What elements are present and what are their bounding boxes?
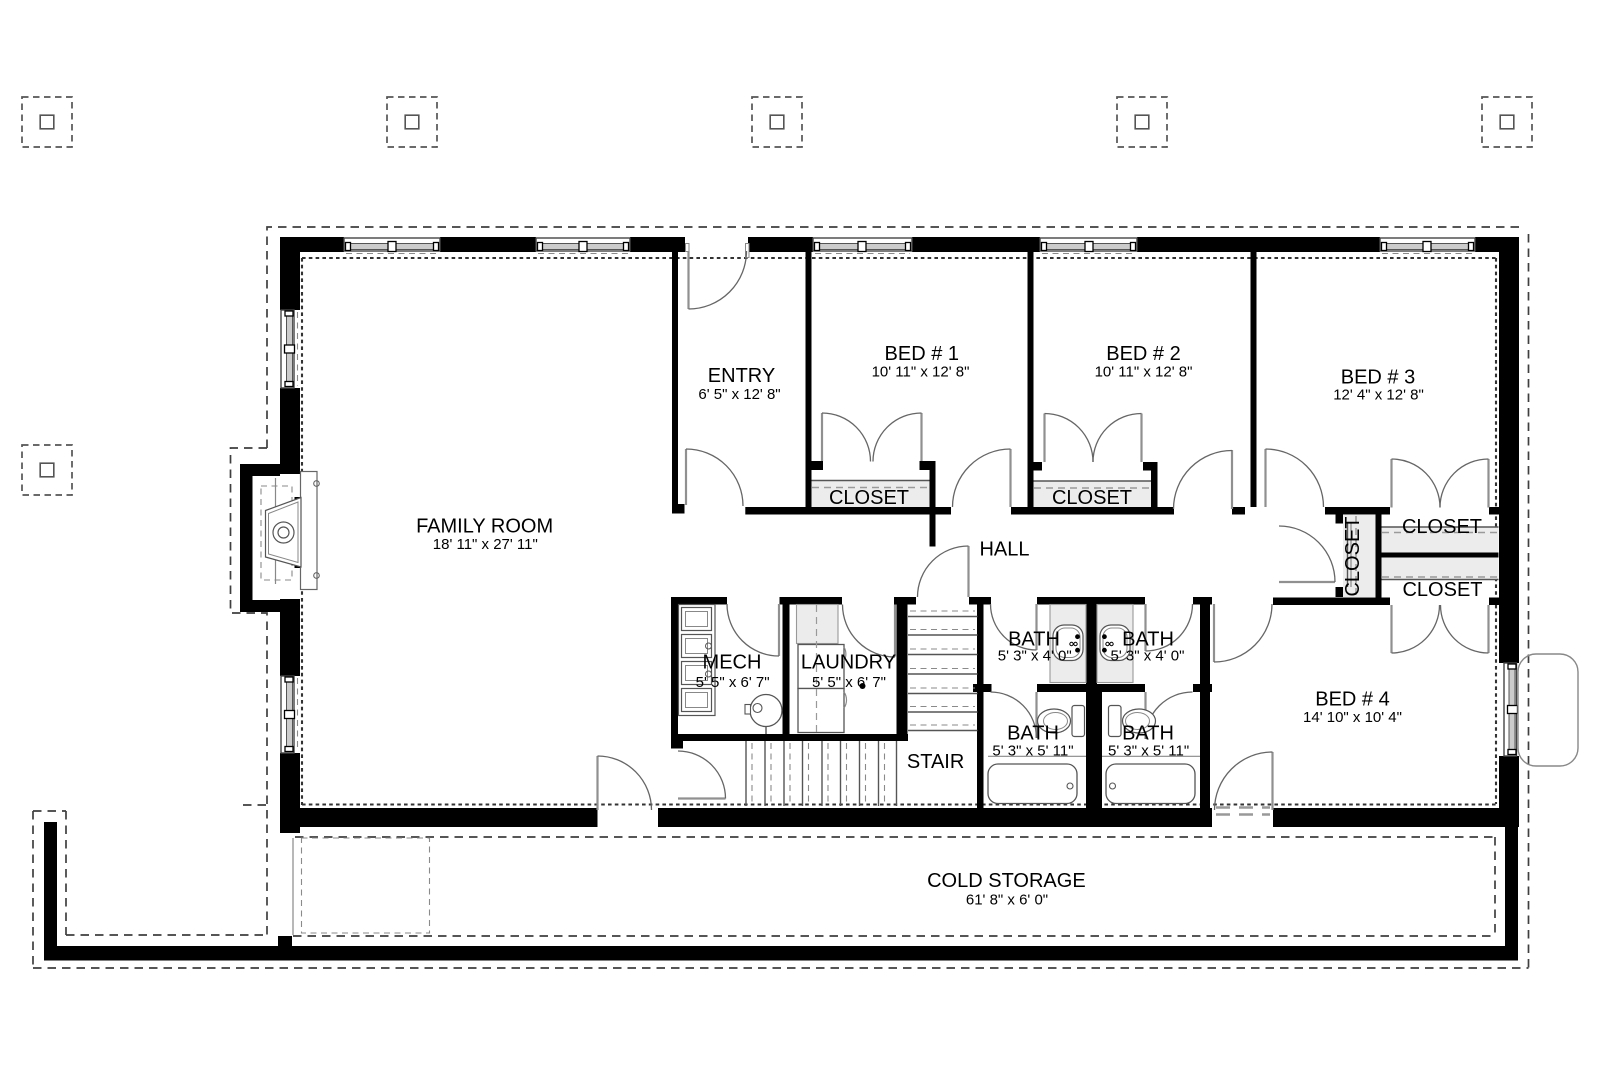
svg-text:5' 3" x 5' 11": 5' 3" x 5' 11" (1108, 743, 1189, 760)
svg-text:CLOSET: CLOSET (1342, 516, 1364, 596)
svg-text:CLOSET: CLOSET (829, 487, 909, 509)
svg-text:FAMILY ROOM: FAMILY ROOM (416, 515, 553, 537)
svg-text:BATH: BATH (1122, 723, 1174, 745)
svg-text:5' 5" x 6' 7": 5' 5" x 6' 7" (812, 674, 886, 691)
svg-text:BED # 1: BED # 1 (885, 343, 959, 365)
svg-text:MECH: MECH (703, 651, 762, 673)
svg-text:5' 5" x 6' 7": 5' 5" x 6' 7" (696, 674, 770, 691)
svg-text:ENTRY: ENTRY (708, 365, 775, 387)
svg-text:CLOSET: CLOSET (1402, 516, 1482, 538)
svg-text:5' 3" x 4' 0": 5' 3" x 4' 0" (1111, 648, 1185, 665)
svg-text:BED # 4: BED # 4 (1315, 689, 1389, 711)
svg-text:10' 11" x 12' 8": 10' 11" x 12' 8" (872, 364, 970, 381)
svg-text:HALL: HALL (979, 539, 1029, 561)
svg-text:6' 5" x 12' 8": 6' 5" x 12' 8" (698, 386, 780, 403)
svg-text:LAUNDRY: LAUNDRY (801, 651, 896, 673)
svg-text:10' 11" x 12' 8": 10' 11" x 12' 8" (1095, 364, 1193, 381)
svg-text:CLOSET: CLOSET (1402, 579, 1482, 601)
svg-text:18' 11" x 27' 11": 18' 11" x 27' 11" (433, 536, 538, 553)
svg-text:BED # 2: BED # 2 (1106, 343, 1180, 365)
svg-text:STAIR: STAIR (907, 751, 964, 773)
svg-text:COLD STORAGE: COLD STORAGE (927, 870, 1086, 892)
svg-text:BED # 3: BED # 3 (1341, 367, 1415, 389)
svg-text:BATH: BATH (1007, 723, 1059, 745)
svg-text:14' 10" x 10' 4": 14' 10" x 10' 4" (1303, 709, 1402, 726)
svg-text:5' 3" x 5' 11": 5' 3" x 5' 11" (992, 743, 1073, 760)
svg-text:12' 4" x 12' 8": 12' 4" x 12' 8" (1333, 387, 1424, 404)
svg-text:CLOSET: CLOSET (1052, 487, 1132, 509)
svg-text:5' 3" x 4' 0": 5' 3" x 4' 0" (998, 648, 1072, 665)
svg-text:61' 8" x 6' 0": 61' 8" x 6' 0" (966, 892, 1048, 909)
